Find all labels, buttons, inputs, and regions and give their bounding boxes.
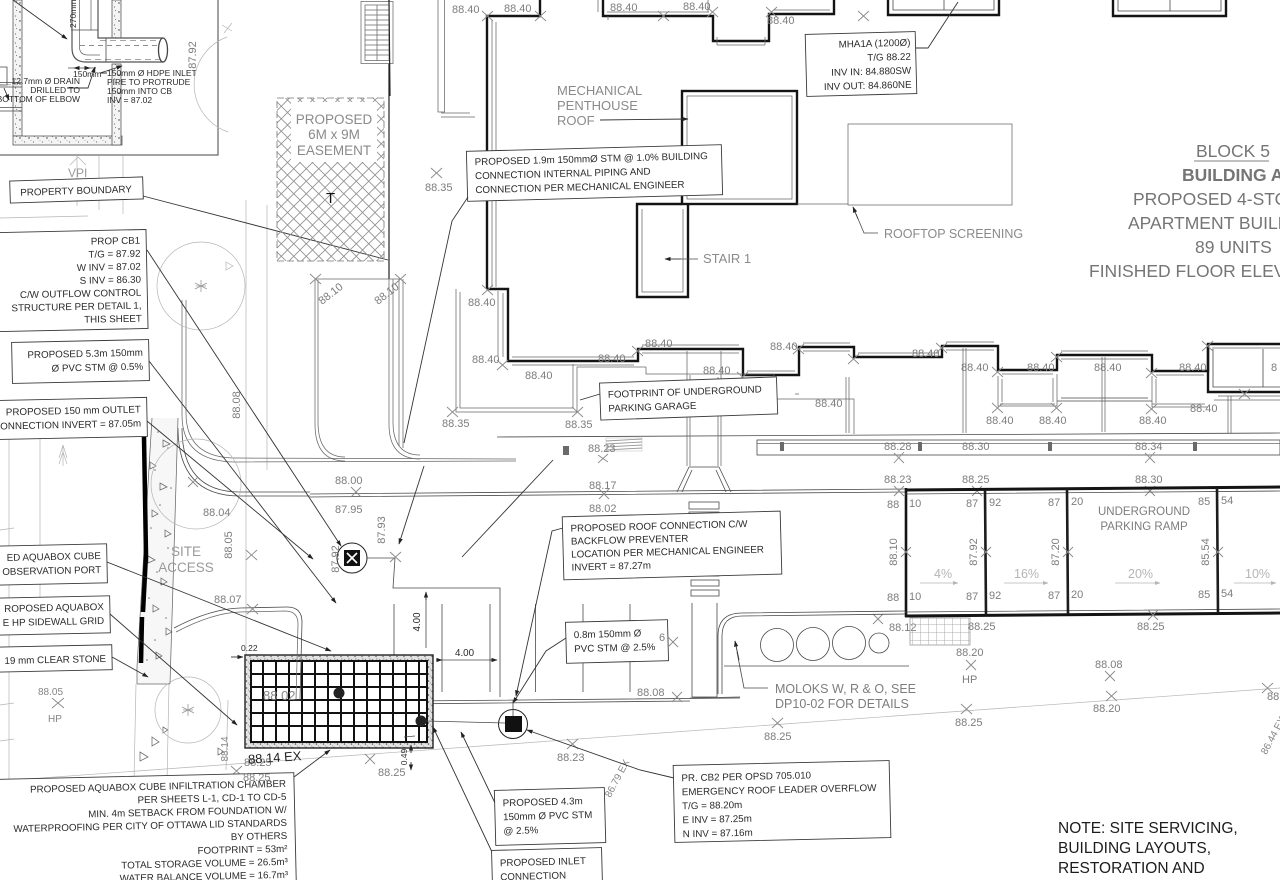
svg-text:HP: HP xyxy=(48,714,62,725)
svg-text:88.20: 88.20 xyxy=(956,647,984,659)
svg-text:S INV = 86.30: S INV = 86.30 xyxy=(80,275,142,287)
svg-text:MHA1A (1200Ø): MHA1A (1200Ø) xyxy=(838,38,910,51)
svg-text:Ø PVC STM @ 0.5%: Ø PVC STM @ 0.5% xyxy=(51,362,143,375)
svg-text:BY OTHERS: BY OTHERS xyxy=(231,831,288,843)
svg-text:0.49: 0.49 xyxy=(399,748,409,765)
svg-text:88.40: 88.40 xyxy=(504,3,532,15)
svg-text:19 mm CLEAR STONE: 19 mm CLEAR STONE xyxy=(4,654,106,667)
svg-text:UNDERGROUND: UNDERGROUND xyxy=(1098,506,1190,518)
svg-text:85.54: 85.54 xyxy=(1200,538,1212,566)
svg-text:88.05: 88.05 xyxy=(38,687,63,698)
svg-text:6M x 9M: 6M x 9M xyxy=(308,127,360,142)
svg-text:88.25: 88.25 xyxy=(962,474,990,486)
svg-text:88.00: 88.00 xyxy=(335,475,363,487)
svg-text:88 02: 88 02 xyxy=(263,688,296,703)
svg-text:6: 6 xyxy=(659,632,665,644)
svg-text:87.92: 87.92 xyxy=(968,538,980,566)
svg-text:88.20: 88.20 xyxy=(1093,703,1121,715)
svg-text:87.92: 87.92 xyxy=(330,545,342,573)
svg-text:T: T xyxy=(326,190,335,207)
svg-text:RESTORATION AND: RESTORATION AND xyxy=(1058,860,1205,877)
svg-text:4.00: 4.00 xyxy=(455,648,475,659)
svg-text:PARKING RAMP: PARKING RAMP xyxy=(1100,521,1188,533)
svg-text:NOTE: SITE SERVICING,: NOTE: SITE SERVICING, xyxy=(1058,820,1238,837)
svg-text:88.30: 88.30 xyxy=(1135,474,1163,486)
svg-text:PVC STM @ 2.5%: PVC STM @ 2.5% xyxy=(574,642,656,655)
svg-text:88.40: 88.40 xyxy=(610,2,638,14)
svg-text:88: 88 xyxy=(887,592,899,604)
svg-text:88: 88 xyxy=(1267,691,1279,703)
svg-text:BOTTOM OF ELBOW: BOTTOM OF ELBOW xyxy=(0,94,80,104)
svg-text:87.92: 87.92 xyxy=(187,41,199,69)
svg-text:88.40: 88.40 xyxy=(1027,362,1055,374)
svg-text:92: 92 xyxy=(989,590,1001,602)
svg-text:88.23: 88.23 xyxy=(557,752,585,764)
svg-text:T/G = 88.20m: T/G = 88.20m xyxy=(682,800,742,812)
svg-text:MECHANICAL: MECHANICAL xyxy=(557,83,642,98)
svg-text:88.40: 88.40 xyxy=(1039,415,1067,427)
svg-text:88.25: 88.25 xyxy=(968,621,996,633)
svg-text:4%: 4% xyxy=(934,567,952,581)
svg-text:87: 87 xyxy=(966,498,978,510)
svg-text:@ 2.5%: @ 2.5% xyxy=(503,825,539,837)
svg-text:BUILDING A: BUILDING A xyxy=(1182,165,1280,185)
svg-text:92: 92 xyxy=(989,497,1001,509)
svg-text:87.95: 87.95 xyxy=(335,504,363,516)
svg-text:SITE: SITE xyxy=(171,544,201,559)
svg-text:88.08: 88.08 xyxy=(1095,659,1123,671)
svg-text:89 UNITS: 89 UNITS xyxy=(1195,237,1272,257)
svg-text:STAIR 1: STAIR 1 xyxy=(703,251,751,266)
svg-text:16%: 16% xyxy=(1014,567,1039,581)
svg-text:88.40: 88.40 xyxy=(770,341,798,353)
svg-text:MOLOKS W, R & O, SEE: MOLOKS W, R & O, SEE xyxy=(775,682,916,696)
svg-text:88.10: 88.10 xyxy=(888,538,900,566)
svg-text:EASEMENT: EASEMENT xyxy=(297,143,371,158)
svg-text:PROPOSED INLET: PROPOSED INLET xyxy=(500,856,586,869)
svg-text:OBSERVATION PORT: OBSERVATION PORT xyxy=(2,565,101,578)
svg-text:88.02: 88.02 xyxy=(589,503,617,515)
svg-text:INV IN: 84.880SW: INV IN: 84.880SW xyxy=(831,66,912,79)
svg-text:270mm: 270mm xyxy=(68,0,78,28)
svg-text:88.28: 88.28 xyxy=(884,441,912,453)
svg-text:88.40: 88.40 xyxy=(472,354,500,366)
svg-text:87: 87 xyxy=(1048,590,1060,602)
svg-text:88.40: 88.40 xyxy=(767,15,795,27)
svg-text:88.34: 88.34 xyxy=(1135,441,1163,453)
svg-text:20: 20 xyxy=(1071,496,1083,508)
svg-text:FINISHED FLOOR ELEVATI: FINISHED FLOOR ELEVATI xyxy=(1089,261,1280,281)
svg-text:88.07: 88.07 xyxy=(214,594,242,606)
svg-text:INVERT = 87.27m: INVERT = 87.27m xyxy=(571,561,651,574)
svg-text:FOOTPRINT = 53m²: FOOTPRINT = 53m² xyxy=(197,844,288,857)
svg-text:PROPOSED: PROPOSED xyxy=(296,112,373,127)
svg-text:88.08: 88.08 xyxy=(231,391,243,419)
svg-text:88.40: 88.40 xyxy=(598,353,626,365)
svg-text:88.35: 88.35 xyxy=(442,418,470,430)
svg-text:PENTHOUSE: PENTHOUSE xyxy=(557,98,638,113)
svg-text:88.40: 88.40 xyxy=(683,1,711,13)
svg-text:INV OUT: 84.860NE: INV OUT: 84.860NE xyxy=(824,80,912,93)
svg-text:88.40: 88.40 xyxy=(1179,362,1207,374)
svg-text:88.14: 88.14 xyxy=(220,736,231,761)
svg-text:PROPOSED 4.3m: PROPOSED 4.3m xyxy=(503,796,583,809)
svg-text:ED AQUABOX CUBE: ED AQUABOX CUBE xyxy=(7,551,102,564)
svg-text:88.40: 88.40 xyxy=(1139,415,1167,427)
svg-text:88.40: 88.40 xyxy=(645,338,673,350)
svg-text:10: 10 xyxy=(909,591,921,603)
svg-text:CONNECTION: CONNECTION xyxy=(500,871,566,880)
svg-text:87: 87 xyxy=(1048,497,1060,509)
svg-text:88.05: 88.05 xyxy=(223,531,235,559)
svg-text:8: 8 xyxy=(1271,362,1277,374)
svg-text:88.17: 88.17 xyxy=(589,480,617,492)
svg-text:87.93: 87.93 xyxy=(376,516,388,544)
svg-text:88.40: 88.40 xyxy=(1190,403,1218,415)
svg-text:ACCESS: ACCESS xyxy=(158,560,214,575)
svg-text:88: 88 xyxy=(887,499,899,511)
svg-text:88.40: 88.40 xyxy=(452,4,480,16)
svg-text:T/G 88.22: T/G 88.22 xyxy=(867,52,911,64)
svg-text:87.20: 87.20 xyxy=(1050,538,1062,566)
svg-text:54: 54 xyxy=(1221,588,1233,600)
svg-text:88.40: 88.40 xyxy=(961,362,989,374)
svg-text:PROPOSED 4-STOREY: PROPOSED 4-STOREY xyxy=(1133,189,1280,209)
svg-text:APARTMENT BUILDING: APARTMENT BUILDING xyxy=(1128,213,1280,233)
svg-text:ROOF: ROOF xyxy=(557,113,595,128)
svg-text:88.40: 88.40 xyxy=(468,297,496,309)
svg-text:20%: 20% xyxy=(1128,567,1153,581)
svg-text:W INV = 87.02: W INV = 87.02 xyxy=(77,262,141,274)
svg-text:88.40: 88.40 xyxy=(986,415,1014,427)
svg-text:88.35: 88.35 xyxy=(425,182,453,194)
svg-text:85: 85 xyxy=(1198,496,1210,508)
svg-text:DP10-02 FOR DETAILS: DP10-02 FOR DETAILS xyxy=(775,697,909,711)
svg-text:88.30: 88.30 xyxy=(962,441,990,453)
svg-text:0.22: 0.22 xyxy=(241,643,258,653)
svg-text:88.35: 88.35 xyxy=(565,419,593,431)
svg-text:0.8m 150mm Ø: 0.8m 150mm Ø xyxy=(574,628,642,641)
svg-text:10%: 10% xyxy=(1245,567,1270,581)
svg-text:88.25: 88.25 xyxy=(764,731,792,743)
svg-text:VPI: VPI xyxy=(68,166,87,180)
svg-text:N INV = 87.16m: N INV = 87.16m xyxy=(683,828,753,841)
svg-text:ROPOSED AQUABOX: ROPOSED AQUABOX xyxy=(4,602,104,615)
svg-text:T/G = 87.92: T/G = 87.92 xyxy=(88,249,140,261)
svg-text:87: 87 xyxy=(966,591,978,603)
svg-text:88.08: 88.08 xyxy=(637,687,665,699)
svg-text:88.40: 88.40 xyxy=(912,348,940,360)
svg-text:HP: HP xyxy=(962,674,977,686)
svg-text:85: 85 xyxy=(1198,589,1210,601)
svg-text:PROP CB1: PROP CB1 xyxy=(91,236,141,248)
svg-text:54: 54 xyxy=(1221,495,1233,507)
svg-text:BUILDING LAYOUTS,: BUILDING LAYOUTS, xyxy=(1058,840,1211,857)
svg-text:88.25: 88.25 xyxy=(243,772,271,784)
svg-text:88.04: 88.04 xyxy=(203,507,231,519)
svg-text:88.25: 88.25 xyxy=(378,767,406,779)
svg-text:INV = 87.02: INV = 87.02 xyxy=(107,95,152,105)
svg-text:BLOCK 5: BLOCK 5 xyxy=(1196,141,1270,161)
svg-text:88.40: 88.40 xyxy=(703,365,731,377)
svg-text:E HP SIDEWALL GRID: E HP SIDEWALL GRID xyxy=(3,616,105,629)
svg-text:88.40: 88.40 xyxy=(1094,362,1122,374)
svg-text:88.23: 88.23 xyxy=(588,443,616,455)
svg-text:150mm Ø PVC STM: 150mm Ø PVC STM xyxy=(503,810,593,823)
svg-text:10: 10 xyxy=(909,498,921,510)
svg-text:THIS SHEET: THIS SHEET xyxy=(84,314,142,326)
svg-text:88.23: 88.23 xyxy=(884,474,912,486)
svg-text:ROOFTOP SCREENING: ROOFTOP SCREENING xyxy=(884,227,1023,241)
svg-text:88.40: 88.40 xyxy=(815,398,843,410)
svg-text:20: 20 xyxy=(1071,589,1083,601)
svg-text:88.25: 88.25 xyxy=(1137,621,1165,633)
svg-text:88.40: 88.40 xyxy=(525,370,553,382)
svg-text:4.00: 4.00 xyxy=(412,612,423,632)
svg-text:88.25: 88.25 xyxy=(955,717,983,729)
svg-text:E INV = 87.25m: E INV = 87.25m xyxy=(682,814,752,827)
